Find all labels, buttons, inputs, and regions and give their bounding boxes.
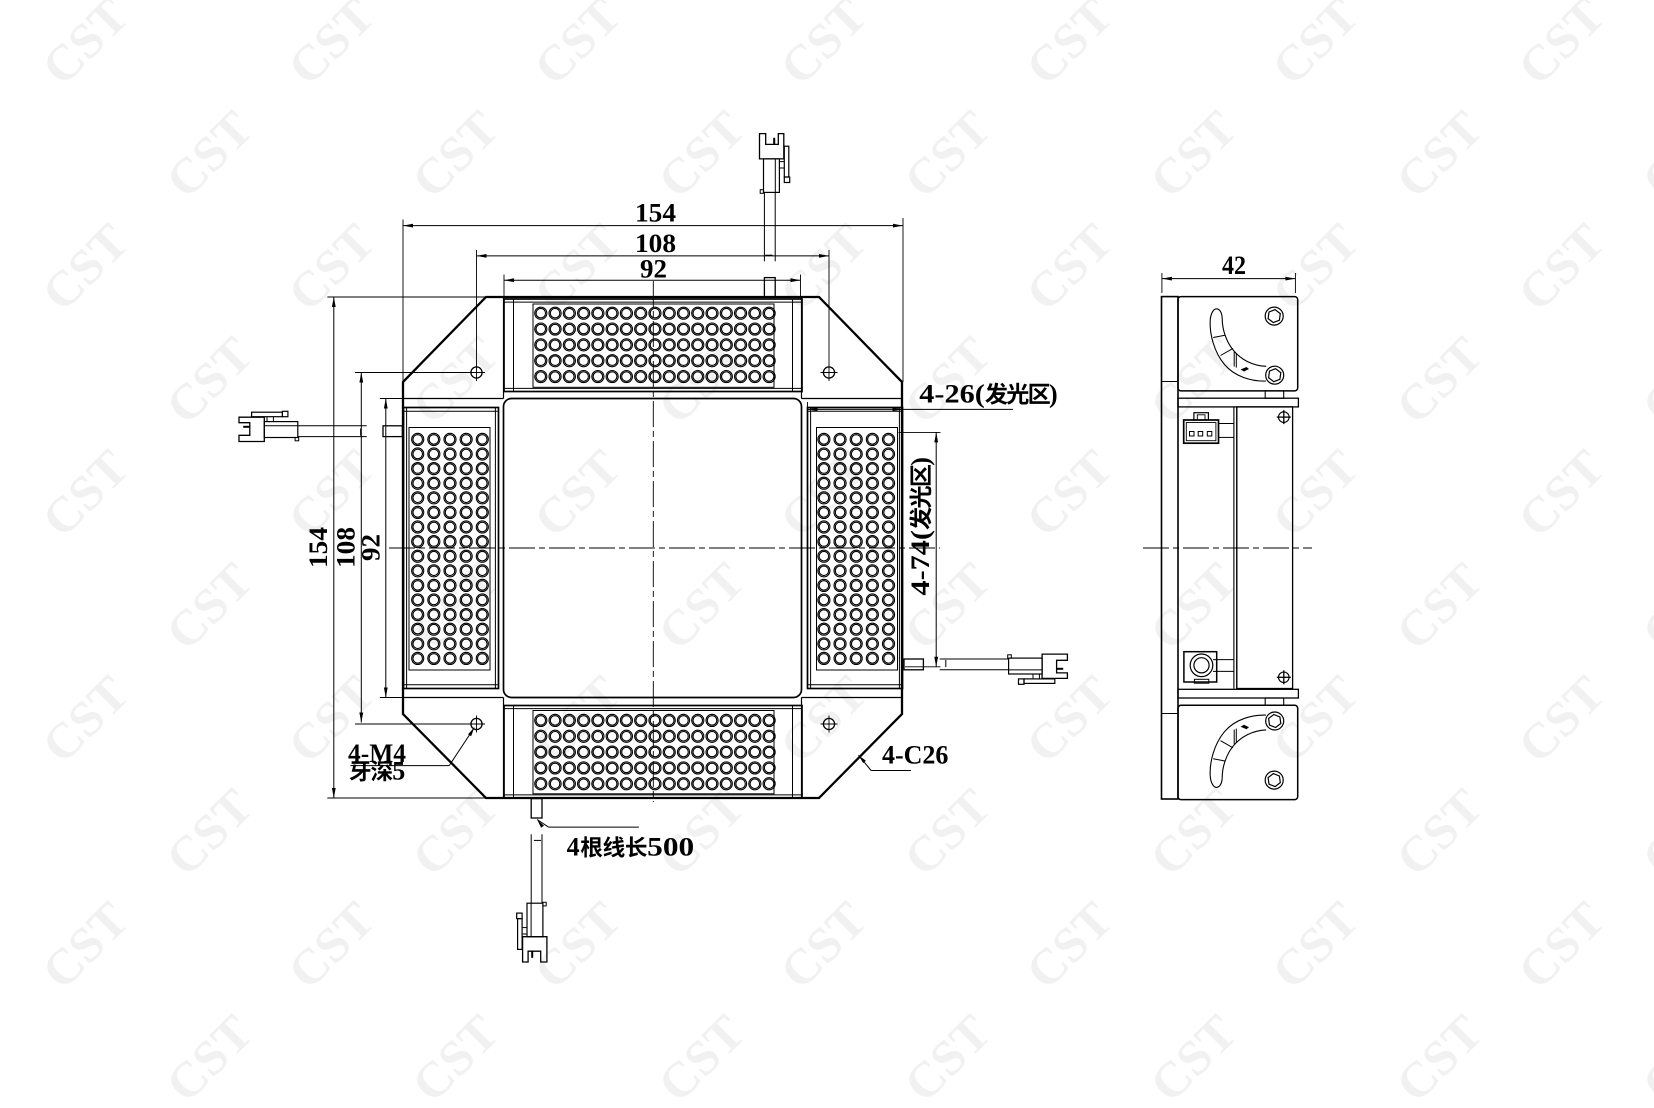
- svg-text:4: 4: [567, 833, 580, 862]
- svg-text:): ): [906, 457, 935, 466]
- svg-text:92: 92: [640, 255, 667, 284]
- svg-text:5: 5: [392, 757, 405, 786]
- svg-text:154: 154: [304, 527, 333, 568]
- svg-text:154: 154: [635, 199, 676, 228]
- svg-text:42: 42: [1222, 251, 1246, 280]
- svg-text:4-C26: 4-C26: [882, 741, 948, 770]
- svg-text:500: 500: [647, 833, 694, 862]
- svg-text:4-26(: 4-26(: [919, 380, 985, 409]
- svg-text:108: 108: [635, 229, 676, 258]
- svg-text:): ): [1049, 380, 1058, 409]
- svg-text:4-74(: 4-74(: [906, 530, 935, 596]
- svg-text:92: 92: [356, 534, 385, 561]
